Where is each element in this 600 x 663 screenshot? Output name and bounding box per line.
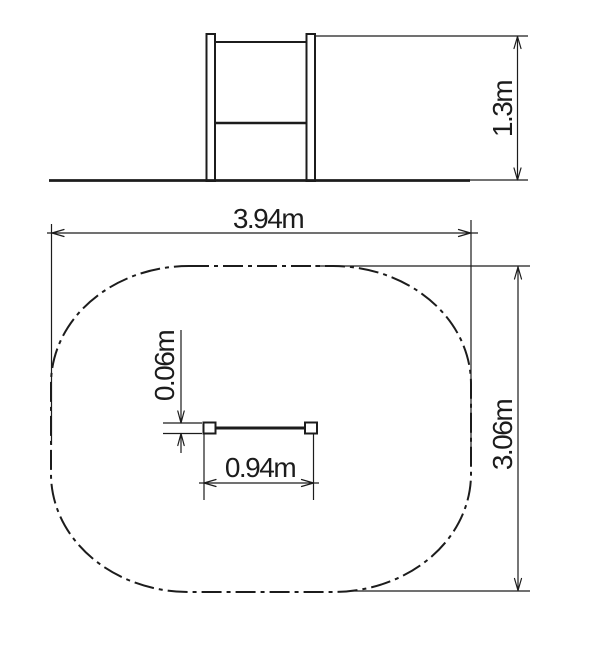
depth-dimension: 3.06m xyxy=(315,266,530,591)
depth-dim-label: 3.06m xyxy=(487,400,518,470)
left-post xyxy=(207,34,216,181)
width-dim-label: 3.94m xyxy=(233,203,303,234)
right-post xyxy=(307,34,316,181)
bar-length-dim-label: 0.94m xyxy=(225,452,295,483)
bar-width-dimension: 0.06m xyxy=(149,330,202,453)
bar-width-dim-label: 0.06m xyxy=(149,331,180,401)
bar-length-dimension: 0.94m xyxy=(199,434,319,500)
drawing-svg: 1.3m 3.94m 3.06m xyxy=(0,0,600,663)
front-elevation-view: 1.3m xyxy=(49,34,528,181)
height-dimension: 1.3m xyxy=(316,36,529,180)
left-post-footprint xyxy=(204,423,216,434)
right-post-footprint xyxy=(305,423,317,434)
width-dimension: 3.94m xyxy=(47,203,478,455)
technical-drawing: 1.3m 3.94m 3.06m xyxy=(0,0,600,663)
plan-view: 3.94m 3.06m 0.94m 0.06 xyxy=(47,203,530,592)
bar-footprint xyxy=(204,423,318,434)
height-dim-label: 1.3m xyxy=(487,81,518,137)
